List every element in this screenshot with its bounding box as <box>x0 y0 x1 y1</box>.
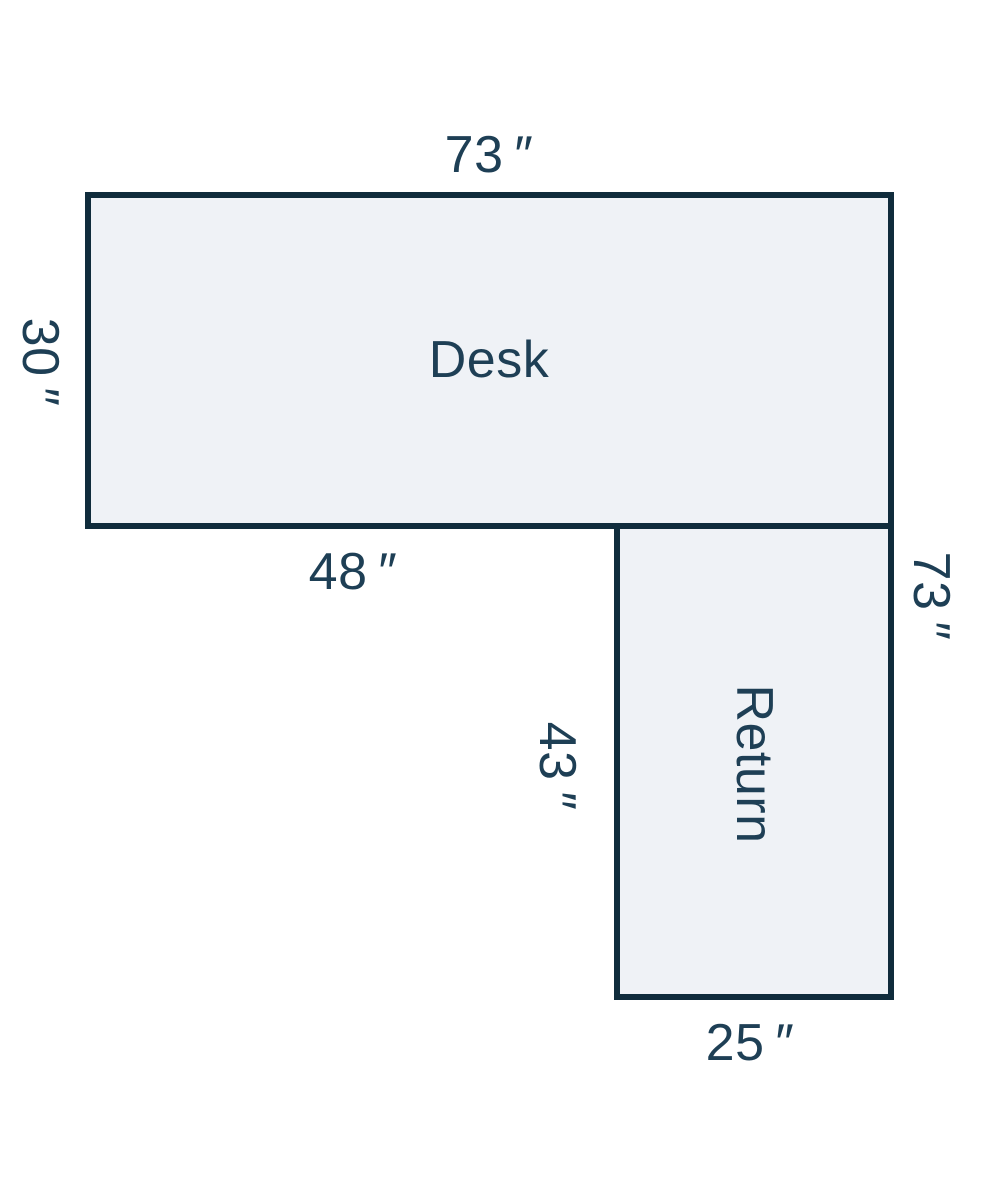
return-left-length-dimension: 43 ″ <box>531 722 583 811</box>
desk-top-width-dimension: 73 ″ <box>445 129 534 181</box>
return-bottom-width-dimension: 25 ″ <box>706 1017 795 1069</box>
return-label: Return <box>728 684 780 843</box>
right-side-height-dimension: 73 ″ <box>905 552 957 641</box>
desk-bottom-segment-dimension: 48 ″ <box>309 546 398 598</box>
desk-label: Desk <box>429 334 549 386</box>
desk-floor-plan-diagram: 73 ″ 30 ″ Desk 48 ″ 73 ″ 43 ″ Return 25 … <box>0 0 1000 1200</box>
desk-left-depth-dimension: 30 ″ <box>14 318 66 407</box>
